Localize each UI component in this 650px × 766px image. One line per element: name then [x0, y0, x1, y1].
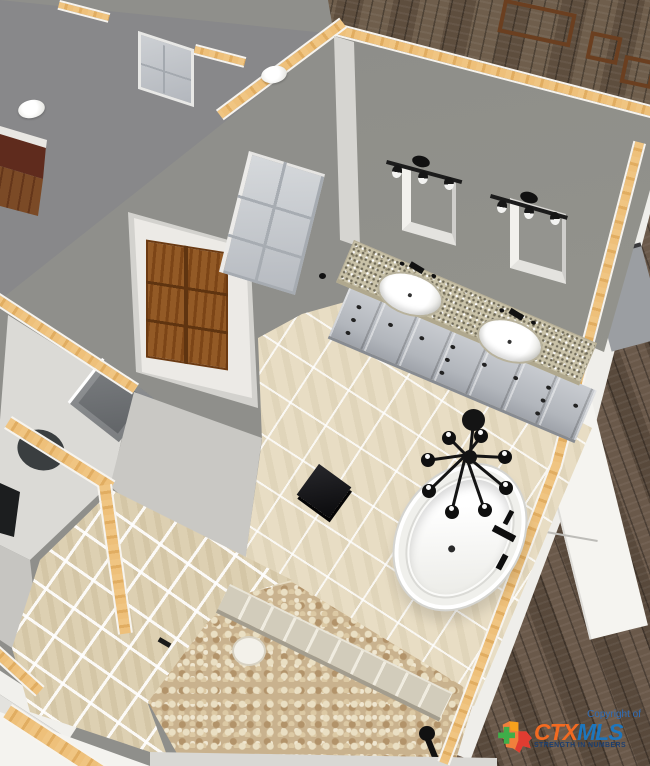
cabinet-knob	[387, 322, 393, 328]
chandelier-bulb	[422, 484, 436, 498]
brand-name: CTXMLS	[534, 720, 626, 744]
ctxmls-logo: CTXMLS STRENGTH IN NUMBERS	[497, 720, 650, 754]
cabinet-knob	[450, 344, 456, 350]
ctxmls-watermark: Copyright of CTXMLS STRENGTH IN NUMBERS	[497, 709, 650, 754]
cabinet-knob	[419, 335, 425, 341]
faucet-handle	[530, 320, 536, 326]
brand-tagline: STRENGTH IN NUMBERS	[534, 742, 626, 749]
cabinet-knob	[535, 411, 541, 417]
chandelier-bulb	[499, 481, 513, 495]
entry-door-panel-lines	[146, 240, 228, 371]
brand-text-block: CTXMLS STRENGTH IN NUMBERS	[534, 720, 626, 749]
cabinet-knob	[545, 385, 551, 391]
faucet-handle	[431, 273, 437, 279]
cabinet-knob	[350, 317, 356, 323]
chandelier-bulb	[421, 453, 435, 467]
bathroom-door-knob	[319, 273, 326, 279]
bathroom-door-panels	[219, 151, 325, 295]
cabinet-knob	[481, 362, 487, 368]
chandelier-bulb	[442, 431, 456, 445]
chandelier-bulb	[474, 429, 488, 443]
chandelier-bulb	[478, 503, 492, 517]
chandelier-bulb	[498, 450, 512, 464]
cabinet-knob	[345, 330, 351, 336]
cabinet-knob	[356, 304, 362, 310]
faucet-handle	[399, 261, 405, 267]
cabinet-knob	[573, 403, 579, 409]
chandelier-bulb	[445, 505, 459, 519]
cabinet-knob	[540, 398, 546, 404]
cabinet-knob	[439, 370, 445, 376]
cabinet-knob	[513, 375, 519, 381]
shower-drain	[234, 638, 264, 664]
texas-logo-icon	[497, 720, 533, 754]
bathroom-3d-dollhouse-render: Copyright of CTXMLS STRENGTH IN NUMBERS	[0, 0, 650, 766]
cabinet-knob	[444, 357, 450, 363]
faucet-handle	[499, 308, 505, 314]
